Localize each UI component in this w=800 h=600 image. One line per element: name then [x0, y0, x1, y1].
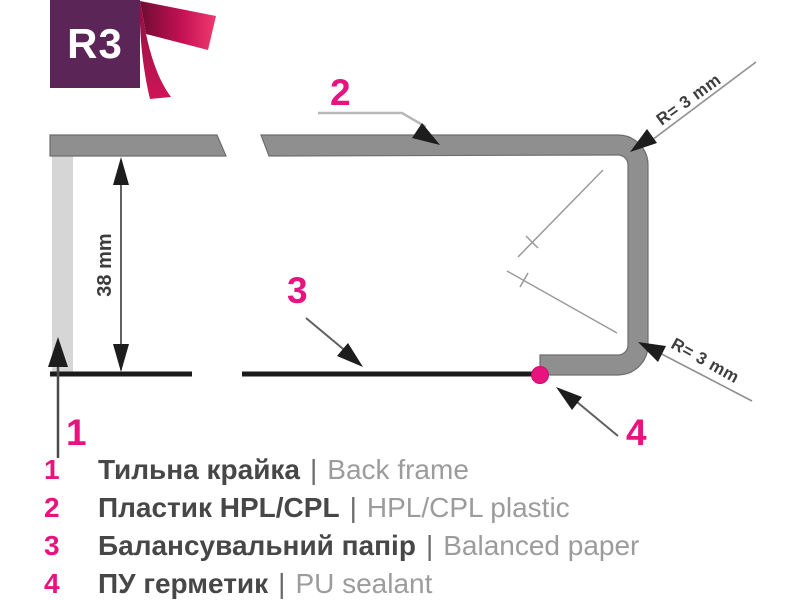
legend-row-4: 4 ПУ герметик | PU sealant: [40, 565, 639, 600]
legend-separator: |: [426, 527, 433, 565]
diagram-canvas: R3 38 mm R= 3 mm R= 3 mm 1 2 3 4 1 Тильн…: [0, 0, 800, 600]
callout-3-number: 3: [287, 272, 308, 309]
legend-separator: |: [350, 489, 357, 527]
profile-badge: R3: [50, 0, 140, 88]
legend-label-en: Back frame: [327, 451, 469, 489]
legend-number: 4: [40, 565, 98, 600]
back-edge-strip: [52, 156, 73, 372]
callout-4-number: 4: [626, 414, 647, 451]
callout-3-arrow: [306, 318, 363, 367]
legend-number: 1: [40, 451, 98, 489]
legend-number: 2: [40, 489, 98, 527]
legend-separator: |: [310, 451, 317, 489]
legend-label-en: PU sealant: [295, 565, 432, 600]
countertop-profile-shape: [261, 135, 648, 375]
dimension-arrow-down-icon: [113, 344, 129, 372]
height-dimension-label: 38 mm: [94, 219, 120, 311]
legend-number: 3: [40, 527, 98, 565]
legend-label-uk: Тильна крайка: [98, 451, 300, 489]
legend-row-2: 2 Пластик HPL/CPL | HPL/CPL plastic: [40, 489, 639, 527]
legend-row-3: 3 Балансувальний папір | Balanced paper: [40, 527, 639, 565]
ribbon-icon: [140, 1, 216, 99]
profile-badge-label: R3: [67, 20, 123, 68]
legend-row-1: 1 Тильна крайка | Back frame: [40, 451, 639, 489]
callout-2-number: 2: [330, 74, 351, 111]
callout-1-number: 1: [66, 414, 87, 451]
dimension-arrow-up-icon: [113, 157, 129, 185]
callout-4-arrow: [556, 387, 618, 436]
legend-separator: |: [278, 565, 285, 600]
legend-label-uk: ПУ герметик: [98, 565, 268, 600]
legend-label-uk: Балансувальний папір: [98, 527, 416, 565]
legend-label-uk: Пластик HPL/CPL: [98, 489, 340, 527]
legend-label-en: HPL/CPL plastic: [367, 489, 570, 527]
legend: 1 Тильна крайка | Back frame 2 Пластик H…: [40, 451, 639, 600]
pu-sealant-dot: [532, 367, 549, 384]
corner-center-marks: [507, 170, 617, 333]
laminate-left-bar: [50, 135, 226, 156]
legend-label-en: Balanced paper: [443, 527, 639, 565]
arrow-up-left-icon: [556, 387, 582, 410]
